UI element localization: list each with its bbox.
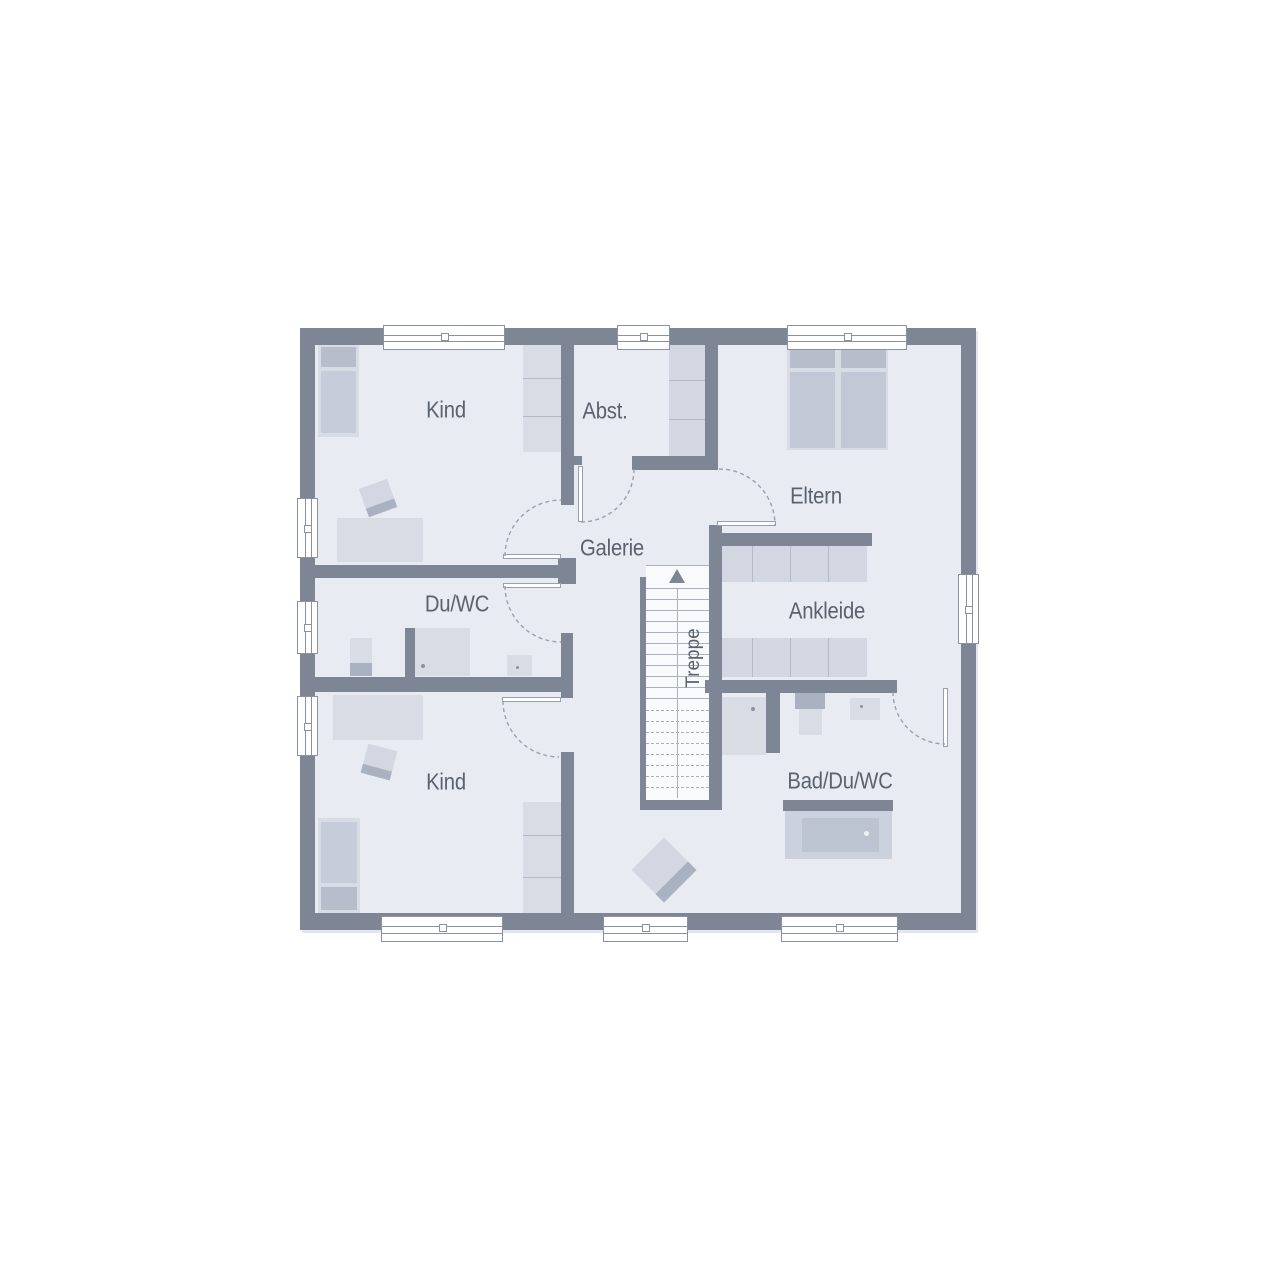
door-swing-arc [581,469,634,522]
door-swing-arc [505,500,561,556]
room-label-eltern: Eltern [787,483,846,510]
door-swing-arc [505,586,561,642]
stairs-label-treppe: Treppe [683,628,705,688]
room-label-ankleide: Ankleide [784,598,871,625]
room-label-du-wc: Du/WC [420,591,493,618]
door-swing-arcs [0,0,1280,1280]
door-swing-arc [503,701,559,757]
room-label-galerie: Galerie [576,535,649,562]
room-label-kind-top: Kind [423,397,468,424]
floor-plan-canvas: Kind Abst. Eltern Galerie Du/WC Ankleide… [0,0,1280,1280]
room-label-bad-du-wc: Bad/Du/WC [780,768,900,795]
door-swing-arc [719,469,775,525]
room-label-kind-bottom: Kind [423,769,468,796]
door-swing-arc [893,692,945,744]
room-label-abstellraum: Abst. [579,398,630,425]
